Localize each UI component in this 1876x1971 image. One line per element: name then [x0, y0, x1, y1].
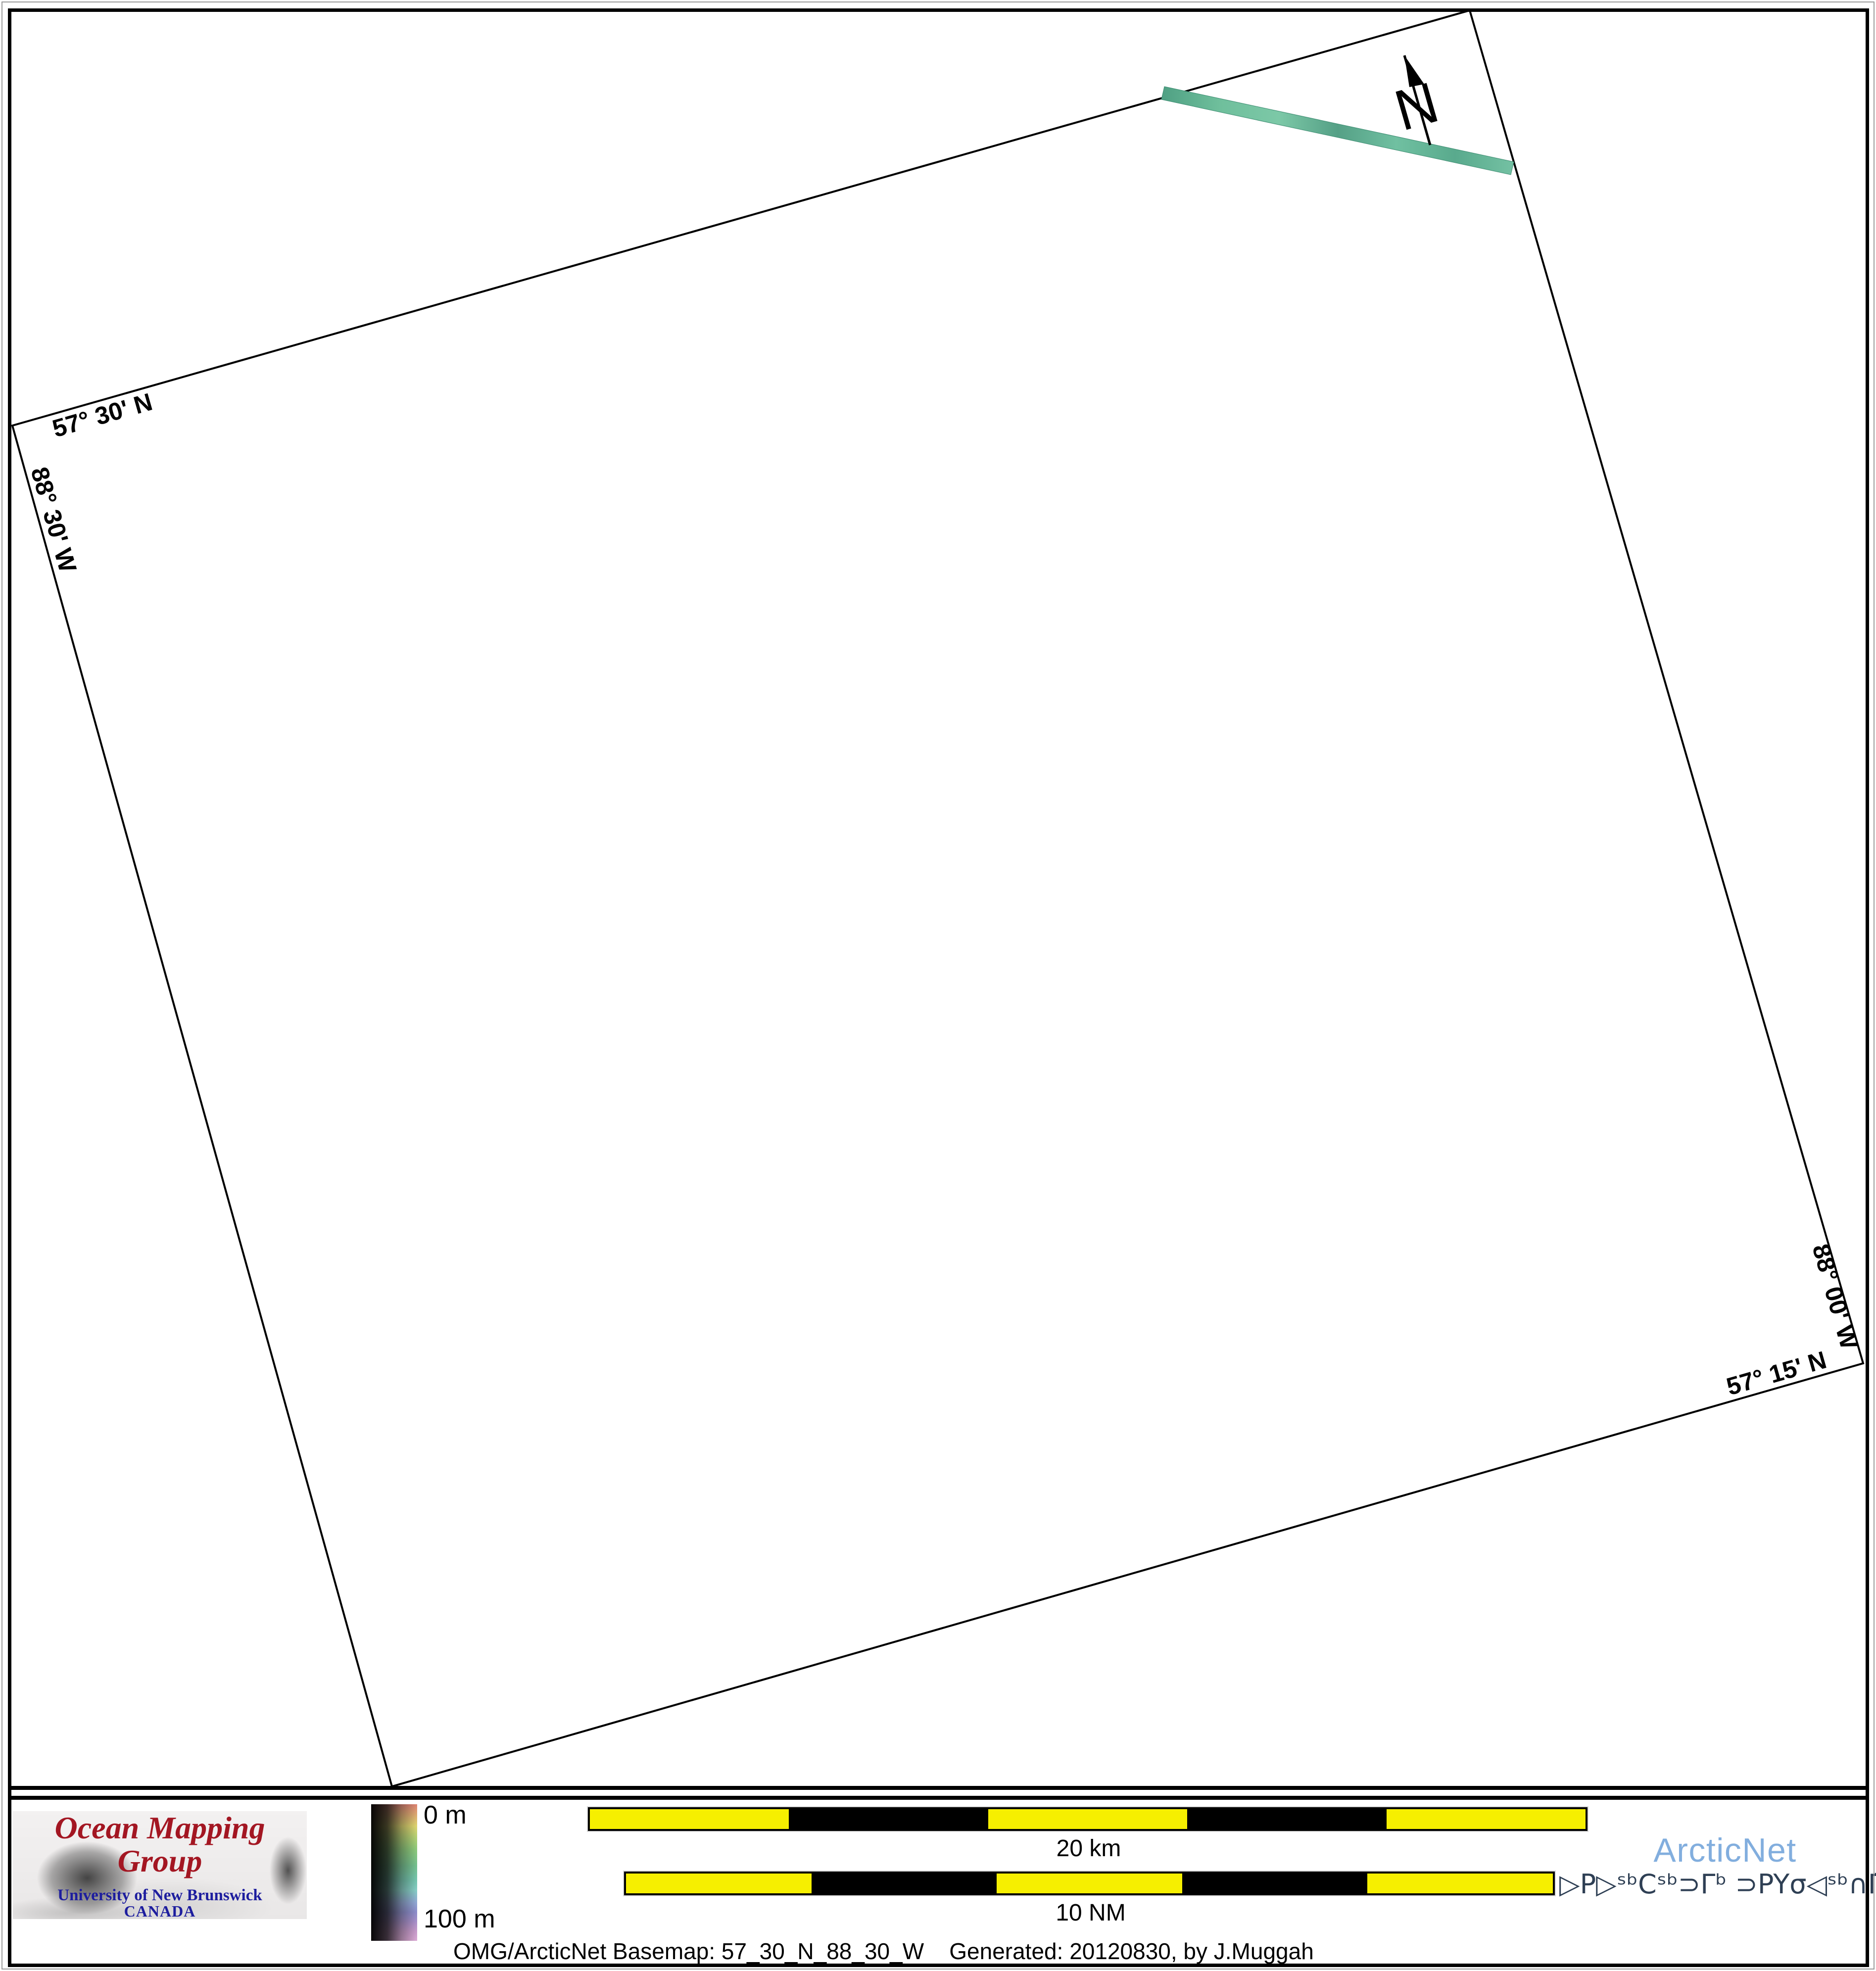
inner-border: [8, 8, 1869, 1967]
basemap-page: N 57° 30' N 88° 30' W 88° 00' W 57° 15' …: [0, 0, 1876, 1971]
